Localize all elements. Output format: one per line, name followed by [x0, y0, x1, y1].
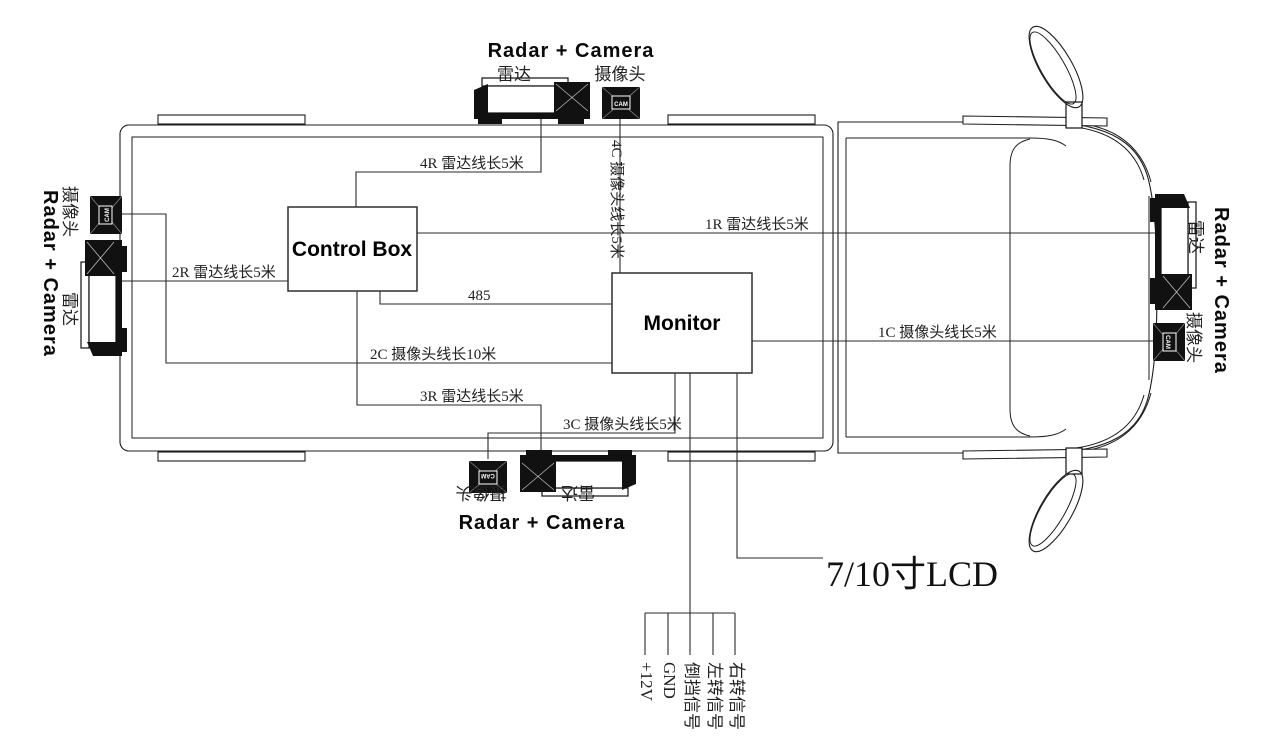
cab-windshield-line [1010, 139, 1030, 436]
radar-device-top [474, 78, 590, 124]
group-title-right: Radar + Camera [1210, 207, 1232, 374]
wire-label-1r: 1R 雷达线长5米 [705, 216, 809, 233]
signal-label-gnd: GND [660, 662, 679, 699]
radar-cn-top: 雷达 [497, 65, 531, 84]
camera-cn-top: 摄像头 [595, 65, 646, 84]
control-box-label: Control Box [292, 238, 412, 261]
control-box: Control Box [288, 207, 417, 291]
wheel-fender-bottom-left [158, 452, 305, 461]
mirror-top [963, 19, 1107, 128]
mirror-bottom-glass [1019, 463, 1093, 559]
wire-lcd-pointer [737, 373, 823, 558]
monitor-label: Monitor [644, 312, 721, 335]
group-title-top: Radar + Camera [488, 40, 655, 62]
wire-label-4r: 4R 雷达线长5米 [420, 155, 524, 172]
camera-device-right [1153, 323, 1185, 361]
wire-485 [380, 291, 612, 304]
lcd-size-label: 7/10寸LCD [826, 554, 998, 594]
monitor-box: Monitor [612, 273, 752, 373]
group-title-left: Radar + Camera [39, 190, 61, 357]
cab-front-accent-1 [1068, 126, 1144, 180]
wheel-fender-top-right [668, 115, 815, 124]
wire-label-3r: 3R 雷达线长5米 [420, 388, 524, 405]
wire-label-2r: 2R 雷达线长5米 [172, 264, 276, 281]
cab-front-accent-2 [1078, 123, 1151, 182]
cab-outline [838, 122, 1157, 453]
camera-cn-right: 摄像头 [1184, 312, 1203, 363]
mirror-top-glass [1019, 19, 1093, 115]
wheel-fender-top-left [158, 115, 305, 124]
camera-device-left [90, 196, 122, 234]
mirror-bottom-blade [963, 449, 1107, 459]
cab-front-accent-3 [1068, 395, 1144, 449]
radar-cn-bottom: 雷达 [561, 483, 595, 502]
camera-cn-left: 摄像头 [60, 186, 79, 237]
cab-bottom-inner-line [846, 429, 1066, 437]
radar-cn-right: 雷达 [1186, 220, 1205, 254]
mirror-bottom [963, 448, 1107, 559]
radar-device-left [81, 240, 127, 356]
wire-label-1c: 1C 摄像头线长5米 [878, 324, 997, 341]
signal-labels: +12V GND 倒挡信号 左转信号 右转信号 [637, 662, 746, 730]
cab-front-accent-4 [1078, 393, 1151, 452]
mirror-top-blade [963, 116, 1107, 126]
signal-label-right-turn: 右转信号 [727, 662, 746, 730]
wire-3r [357, 291, 541, 456]
wire-3c [488, 373, 675, 459]
wire-label-3c: 3C 摄像头线长5米 [563, 416, 682, 433]
radar-cn-left: 雷达 [60, 292, 79, 326]
signal-label-left-turn: 左转信号 [705, 662, 724, 730]
truck-cab [838, 19, 1157, 559]
wire-label-4c: 4C 摄像头线长5米 [608, 140, 625, 259]
camera-device-top [602, 87, 640, 119]
cab-top-inner-line [846, 138, 1066, 146]
signal-label-12v: +12V [637, 662, 656, 702]
signal-label-reverse: 倒挡信号 [682, 662, 701, 730]
wiring-diagram: CAM [0, 0, 1284, 747]
group-title-bottom: Radar + Camera [459, 512, 626, 534]
wires [120, 116, 1155, 655]
camera-cn-bottom: 摄像头 [456, 483, 507, 502]
wire-label-485: 485 [468, 288, 491, 304]
wire-label-2c: 2C 摄像头线长10米 [370, 346, 496, 363]
